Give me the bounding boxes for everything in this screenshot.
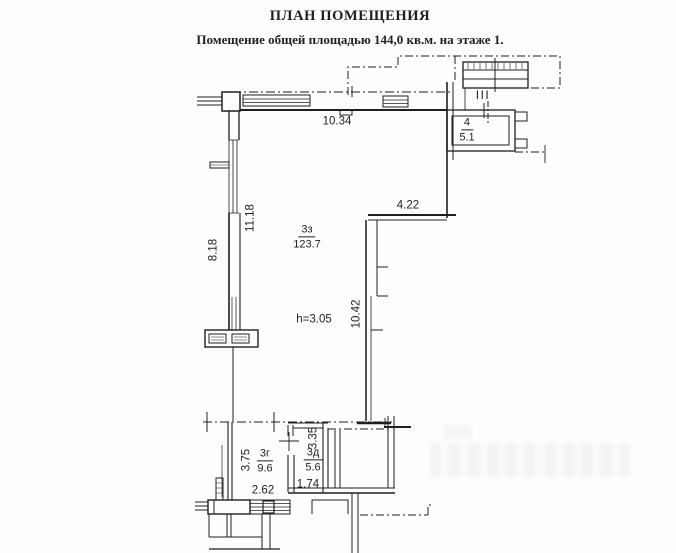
room-area: 9.6 (257, 461, 272, 475)
window-band-2 (383, 96, 408, 107)
room-4-label: 4 5.1 (459, 116, 474, 143)
room-area: 5.1 (459, 130, 474, 144)
room-3z-label: 3з 123.7 (293, 223, 321, 250)
dim-top-wall: 10.34 (323, 116, 352, 128)
window-band-1 (243, 95, 310, 106)
dim-left-outer: 8.18 (208, 239, 220, 261)
opening-ticks (371, 267, 388, 330)
dim-room-3g-width: 2.62 (252, 485, 274, 497)
left-wall (210, 111, 240, 331)
dim-room-3d-width: 1.74 (297, 479, 319, 491)
floor-plan-page: ПЛАН ПОМЕЩЕНИЯ Помещение общей площадью … (0, 0, 676, 553)
room-area: 5.6 (305, 460, 320, 474)
entrance-structure (209, 493, 434, 553)
room-3g-label: 3г 9.6 (257, 447, 273, 474)
shaft-walls (328, 416, 411, 488)
ceiling-height-note: h=3.05 (296, 314, 332, 326)
room-number: 3г (257, 447, 273, 461)
bottom-wall (195, 478, 290, 514)
dim-step-wall: 4.22 (397, 200, 419, 212)
room-3d-label: 3д 5.6 (304, 446, 323, 473)
room-number: 3д (304, 446, 323, 460)
dim-right-inner: 10.42 (351, 300, 363, 329)
top-left-corner-block (222, 92, 240, 111)
column-detail (205, 330, 258, 347)
room-number: 3з (298, 223, 315, 237)
watermark (430, 443, 630, 477)
top-left-window-stub (197, 97, 222, 105)
walls-group (195, 56, 560, 553)
room-number: 4 (461, 116, 473, 130)
dim-room-3g-depth: 3.75 (241, 449, 253, 471)
staircase-block (463, 58, 528, 92)
dim-left-inner: 11.18 (245, 204, 257, 232)
section-mark-iii: III (476, 88, 491, 102)
room-area: 123.7 (293, 237, 321, 251)
